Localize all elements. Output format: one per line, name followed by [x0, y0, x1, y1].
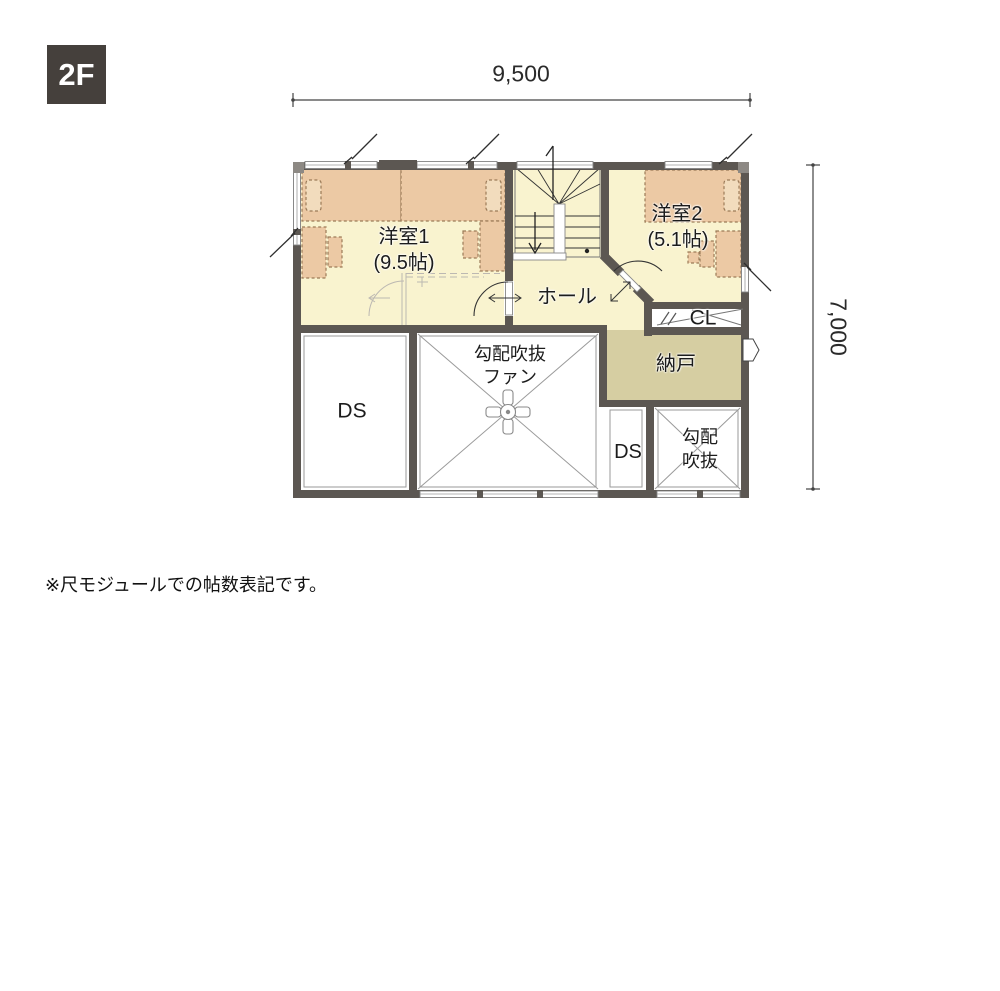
room-label-duct-small: DS: [614, 442, 642, 462]
desk-icon: [302, 227, 326, 278]
floor-plan-drawing: [0, 0, 1000, 991]
room-label-duct-large: DS: [337, 401, 366, 422]
dimension-line-top: [291, 93, 752, 107]
room-label-void-fan-line1: 勾配吹抜: [474, 345, 546, 363]
chair-icon: [328, 237, 342, 267]
room-label-void-line2: 吹抜: [682, 452, 718, 470]
pillow-icon: [486, 180, 501, 211]
corner-post: [293, 162, 304, 173]
room-label-void-fan-line2: ファン: [483, 368, 537, 386]
footnote: ※尺モジュールでの帖数表記です。: [45, 571, 327, 597]
side-table-icon: [688, 252, 699, 263]
floor-badge: 2F: [47, 45, 106, 104]
room-label-storage: 納戸: [656, 354, 696, 374]
room-label-closet: CL: [690, 308, 717, 329]
wall-mid-horizontal: [293, 325, 607, 333]
wall-western2-west: [601, 170, 609, 258]
chair-icon: [463, 231, 478, 258]
dimension-top-label: 9,500: [492, 63, 550, 86]
desk-icon: [480, 221, 505, 271]
corner-post: [738, 162, 749, 173]
room-label-western2-size: (5.1帖): [647, 230, 708, 250]
wall-duct-small-east: [646, 407, 654, 490]
wall-storage-bottom: [599, 400, 749, 407]
pillow-icon: [724, 180, 739, 211]
desk-icon: [716, 231, 741, 277]
room-label-hall: ホール: [537, 287, 597, 307]
pillow-icon: [306, 180, 321, 211]
room-label-western1-size: (9.5帖): [373, 253, 434, 273]
dimension-right-label: 7,000: [827, 298, 850, 356]
storage-vent-icon: [743, 339, 759, 361]
wall-duct-large-east: [409, 333, 417, 490]
dimension-line-right: [806, 163, 820, 491]
floor-plan-page: 2F 9,500 7,000 洋室1 (9.5帖) 洋室2 (5.1帖) ホール…: [0, 0, 1000, 991]
room-label-western1-name: 洋室1: [378, 227, 429, 247]
wall-right: [741, 162, 749, 498]
room-label-western2-name: 洋室2: [651, 204, 702, 224]
wall-storage-west: [599, 333, 607, 402]
room-label-void-line1: 勾配: [682, 428, 718, 446]
window-shutter-box: [379, 160, 417, 169]
wall-hall-west-upper: [505, 170, 513, 281]
